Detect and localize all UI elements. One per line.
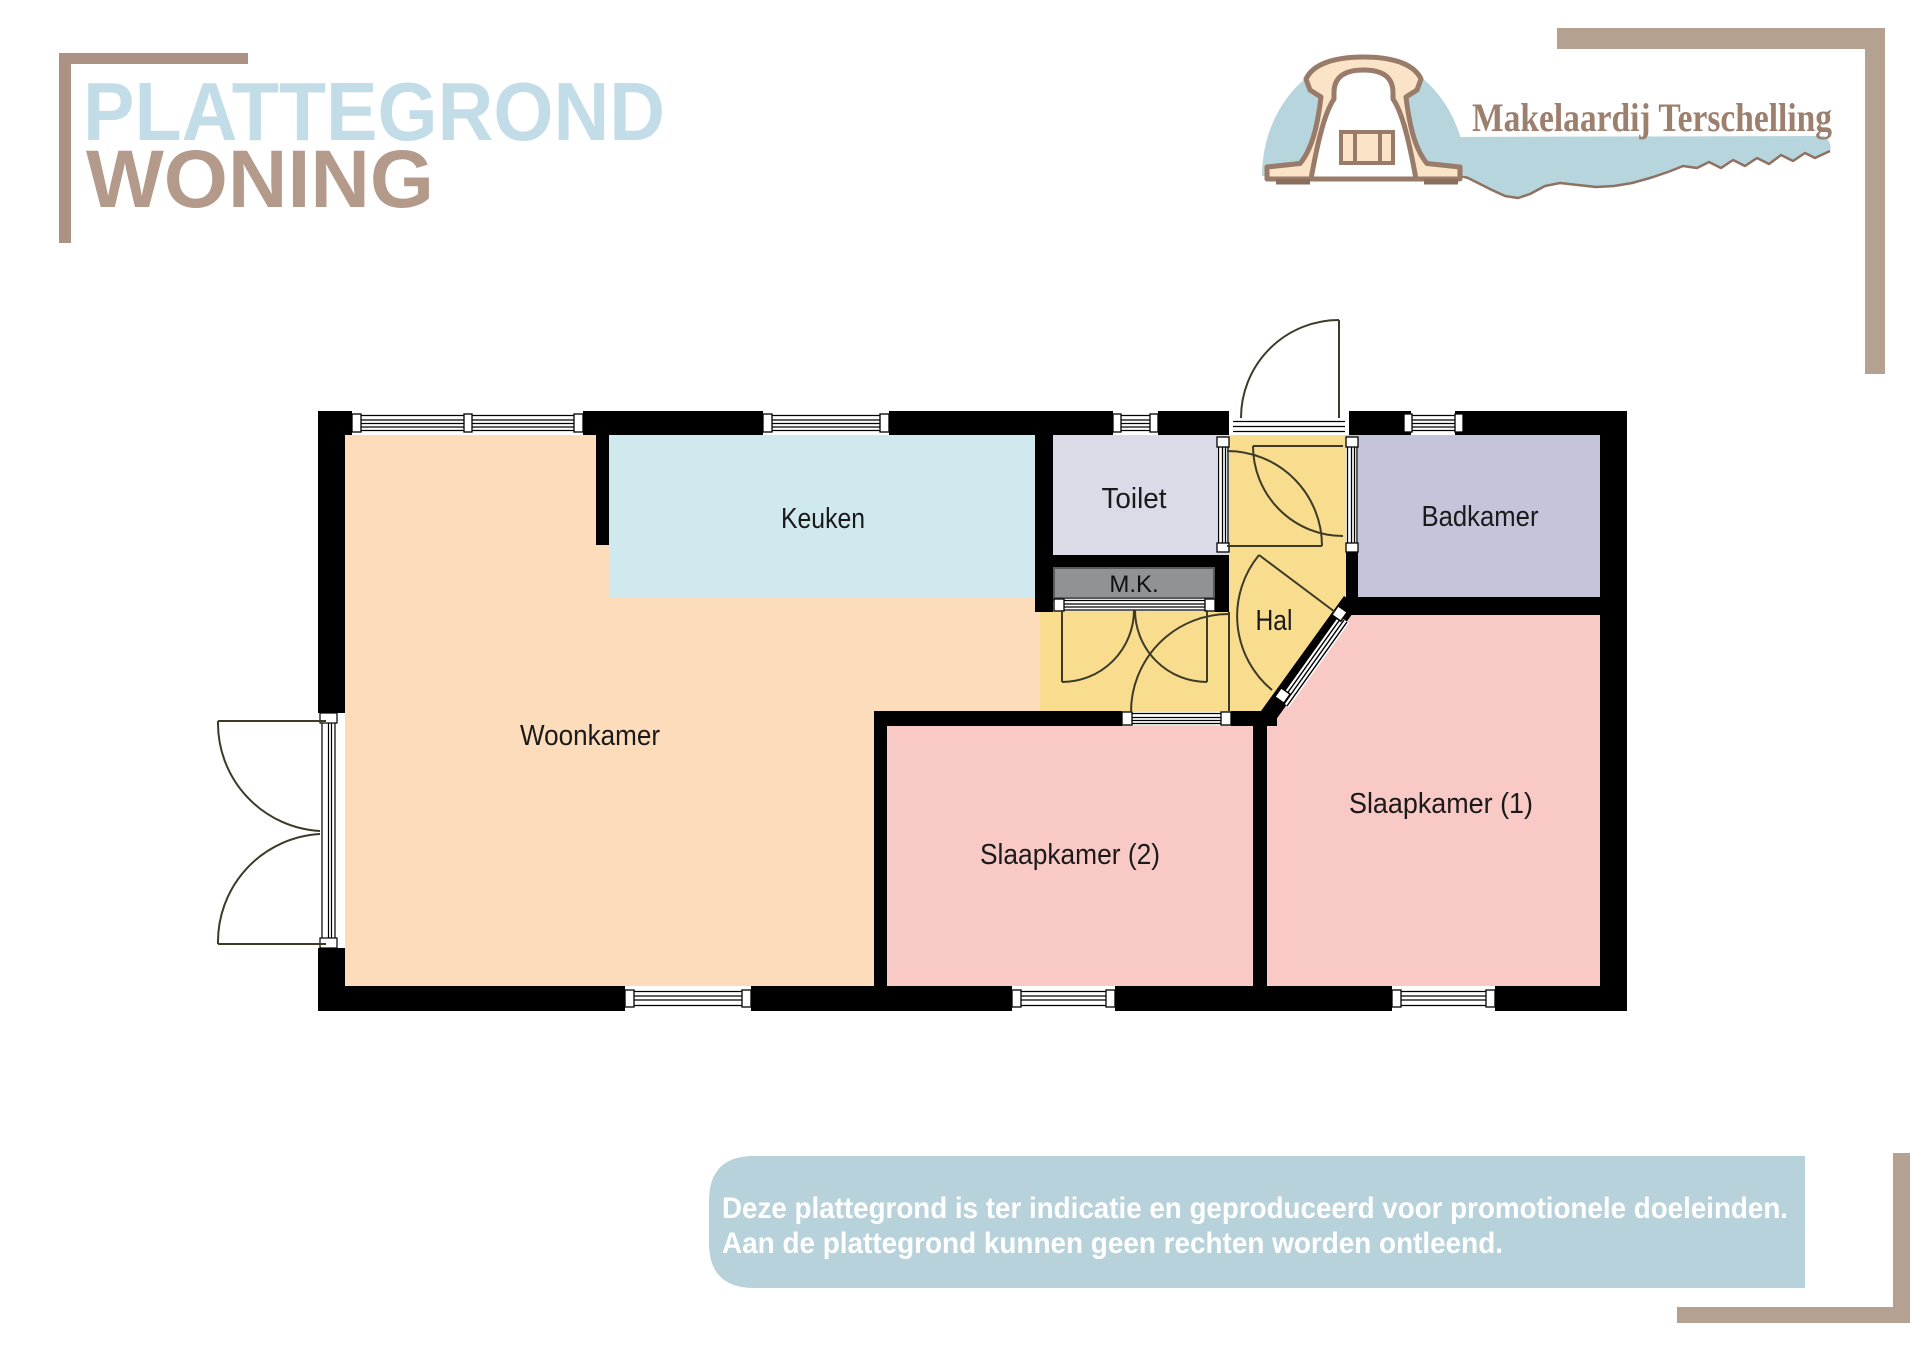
svg-text:WONING: WONING: [86, 134, 434, 225]
svg-text:Keuken: Keuken: [781, 503, 865, 535]
svg-text:Hal: Hal: [1256, 605, 1293, 637]
svg-text:Makelaardij Terschelling: Makelaardij Terschelling: [1472, 95, 1832, 140]
svg-text:Woonkamer: Woonkamer: [520, 720, 660, 752]
svg-text:Aan de plattegrond kunnen geen: Aan de plattegrond kunnen geen rechten w…: [722, 1227, 1503, 1260]
svg-text:Badkamer: Badkamer: [1422, 501, 1539, 533]
svg-text:Toilet: Toilet: [1102, 483, 1167, 515]
svg-text:Slaapkamer (2): Slaapkamer (2): [980, 839, 1160, 871]
svg-text:M.K.: M.K.: [1109, 571, 1158, 598]
svg-text:Deze plattegrond is ter indica: Deze plattegrond is ter indicatie en gep…: [722, 1192, 1788, 1225]
svg-text:Slaapkamer (1): Slaapkamer (1): [1349, 788, 1533, 820]
